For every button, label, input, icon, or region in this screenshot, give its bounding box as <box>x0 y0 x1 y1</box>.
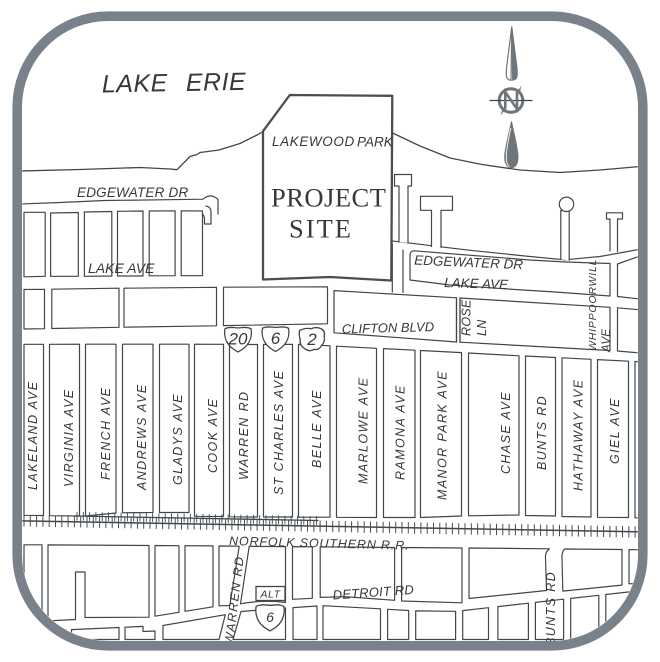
svg-text:MANOR PARK AVE: MANOR PARK AVE <box>436 370 450 500</box>
svg-text:CLIFTON BLVD: CLIFTON BLVD <box>342 319 435 336</box>
svg-text:ANDREWS AVE: ANDREWS AVE <box>135 383 149 491</box>
svg-text:ALT: ALT <box>260 589 282 601</box>
svg-text:AVE: AVE <box>601 329 613 353</box>
svg-text:PROJECT: PROJECT <box>271 183 386 213</box>
svg-text:LN: LN <box>475 319 489 336</box>
svg-text:LAKE AVE: LAKE AVE <box>88 260 155 276</box>
svg-text:GIEL AVE: GIEL AVE <box>608 397 622 464</box>
svg-text:LAKE AVE: LAKE AVE <box>444 275 510 292</box>
svg-text:VIRGINIA AVE: VIRGINIA AVE <box>62 388 76 487</box>
svg-text:PARK: PARK <box>357 135 394 150</box>
svg-text:RAMONA AVE: RAMONA AVE <box>394 384 408 480</box>
svg-text:WARREN RD: WARREN RD <box>237 391 251 480</box>
svg-text:BUNTS RD: BUNTS RD <box>535 395 549 470</box>
svg-text:20: 20 <box>228 330 248 349</box>
svg-text:ST CHARLES AVE: ST CHARLES AVE <box>272 370 286 495</box>
svg-text:WHIPPOORWILL: WHIPPOORWILL <box>587 259 599 351</box>
svg-text:CHASE AVE: CHASE AVE <box>499 391 513 474</box>
svg-text:COOK AVE: COOK AVE <box>206 398 220 473</box>
svg-text:BELLE AVE: BELLE AVE <box>310 389 324 468</box>
svg-text:MARLOWE AVE: MARLOWE AVE <box>357 377 371 484</box>
svg-text:2: 2 <box>306 330 317 349</box>
svg-text:LAKELAND AVE: LAKELAND AVE <box>26 381 40 490</box>
svg-text:6: 6 <box>271 329 281 348</box>
svg-text:LAKE: LAKE <box>102 69 169 98</box>
svg-text:ERIE: ERIE <box>186 68 247 97</box>
svg-text:FRENCH AVE: FRENCH AVE <box>99 387 113 480</box>
svg-text:EDGEWATER DR: EDGEWATER DR <box>77 185 188 200</box>
svg-text:HATHAWAY AVE: HATHAWAY AVE <box>572 379 586 491</box>
svg-text:GLADYS AVE: GLADYS AVE <box>171 393 185 485</box>
svg-text:SITE: SITE <box>289 214 353 244</box>
svg-text:BUNTS RD: BUNTS RD <box>544 571 558 646</box>
svg-text:6: 6 <box>266 609 274 625</box>
svg-text:ROSE: ROSE <box>460 299 474 336</box>
svg-text:LAKEWOOD: LAKEWOOD <box>272 134 355 149</box>
